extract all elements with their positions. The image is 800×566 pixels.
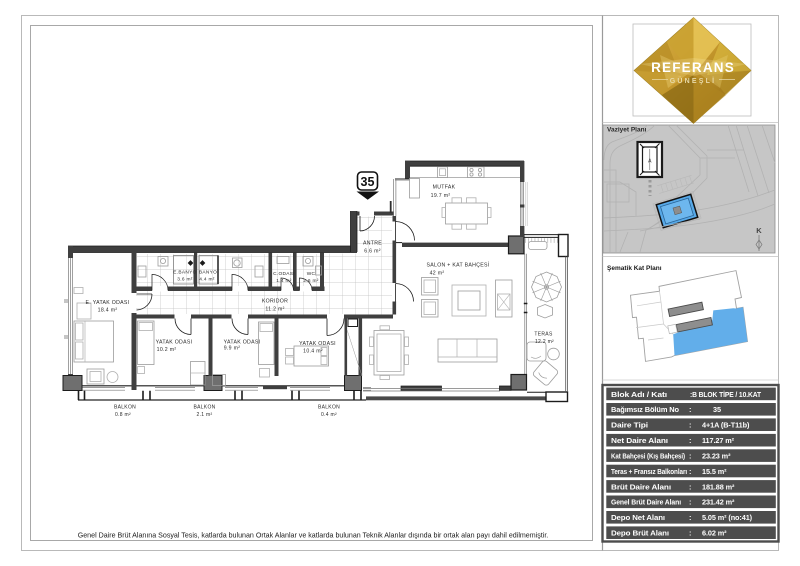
svg-text:0.8 m²: 0.8 m²: [115, 412, 131, 418]
svg-text:181.88 m²: 181.88 m²: [702, 482, 735, 491]
svg-text:2.6 m²: 2.6 m²: [303, 278, 318, 284]
svg-text:GÜNEŞLİ: GÜNEŞLİ: [670, 76, 717, 85]
svg-text:Depo Brüt Alanı: Depo Brüt Alanı: [611, 529, 669, 538]
svg-text:YATAK ODASI: YATAK ODASI: [156, 340, 193, 346]
svg-text:MUTFAK: MUTFAK: [433, 185, 456, 191]
svg-text:1.4 m²: 1.4 m²: [276, 278, 291, 284]
svg-text:ANTRE: ANTRE: [363, 241, 382, 247]
svg-text::: :: [689, 513, 691, 522]
svg-text:Bağımsız Bölüm No: Bağımsız Bölüm No: [611, 405, 680, 414]
svg-text:Genel Brüt Daire Alanı: Genel Brüt Daire Alanı: [611, 498, 681, 507]
svg-text::: :: [689, 452, 691, 461]
svg-text:0.4 m²: 0.4 m²: [321, 412, 337, 418]
svg-text:10.4 m²: 10.4 m²: [303, 349, 323, 355]
svg-text:35: 35: [361, 175, 375, 189]
svg-text:REFERANS: REFERANS: [651, 60, 735, 75]
svg-text:Genel Daire Brüt Alanına Sosya: Genel Daire Brüt Alanına Sosyal Tesis, k…: [78, 532, 549, 540]
svg-text:E.BANYO: E.BANYO: [173, 270, 196, 276]
svg-text:BALKON: BALKON: [193, 405, 215, 411]
svg-text::: :: [689, 498, 691, 507]
svg-text:BANYO: BANYO: [199, 270, 217, 276]
svg-text::: :: [689, 467, 691, 476]
svg-text:231.42 m²: 231.42 m²: [702, 498, 735, 507]
svg-text:10.2 m²: 10.2 m²: [157, 347, 177, 353]
svg-text::: :: [689, 529, 691, 538]
svg-text:9.9 m²: 9.9 m²: [224, 346, 241, 352]
svg-text:4+1A (B-T11b): 4+1A (B-T11b): [702, 421, 750, 430]
svg-text:Kat Bahçesi (Kış Bahçesi): Kat Bahçesi (Kış Bahçesi): [611, 452, 686, 461]
svg-text:WC: WC: [307, 271, 316, 277]
svg-text:Blok Adı / Katı: Blok Adı / Katı: [611, 390, 667, 399]
svg-text:42 m²: 42 m²: [430, 271, 445, 277]
svg-text:BALKON: BALKON: [318, 405, 340, 411]
svg-text:Teras + Fransız Balkonları: Teras + Fransız Balkonları: [611, 467, 687, 476]
svg-text:23.23 m²: 23.23 m²: [702, 452, 731, 461]
svg-text:19.7 m²: 19.7 m²: [431, 193, 451, 199]
svg-text:4.4 m²: 4.4 m²: [199, 277, 214, 283]
svg-text:5.05 m² (no:41): 5.05 m² (no:41): [702, 513, 753, 522]
svg-text:K: K: [756, 226, 762, 235]
svg-text:Brüt Daire Alanı: Brüt Daire Alanı: [611, 482, 671, 491]
svg-text:18.4 m²: 18.4 m²: [98, 308, 118, 314]
svg-text:E. YATAK ODASI: E. YATAK ODASI: [86, 300, 130, 306]
svg-text:3.6 m²: 3.6 m²: [177, 277, 192, 283]
svg-text:SALON + KAT BAHÇESİ: SALON + KAT BAHÇESİ: [426, 262, 489, 269]
svg-text:11.2 m²: 11.2 m²: [265, 307, 284, 313]
svg-text::: :: [689, 405, 691, 414]
svg-text:Vaziyet Planı: Vaziyet Planı: [607, 127, 647, 134]
svg-text::: :: [689, 482, 691, 491]
svg-text::: :: [689, 436, 691, 445]
svg-text:Şematik Kat Planı: Şematik Kat Planı: [607, 265, 662, 272]
svg-text:6.02 m²: 6.02 m²: [702, 529, 727, 538]
svg-text:12.2 m²: 12.2 m²: [535, 339, 554, 345]
svg-text:Net Daire Alanı: Net Daire Alanı: [611, 436, 668, 445]
svg-text:YATAK ODASI: YATAK ODASI: [299, 341, 336, 347]
svg-text:117.27 m²: 117.27 m²: [702, 436, 735, 445]
svg-text:KORIDOR: KORIDOR: [262, 299, 288, 305]
svg-text:Daire Tipi: Daire Tipi: [611, 421, 648, 430]
svg-text:2.1 m²: 2.1 m²: [197, 412, 213, 418]
svg-text:TERAS: TERAS: [534, 332, 553, 338]
svg-text::: :: [689, 421, 691, 430]
svg-text:Depo Net Alanı: Depo Net Alanı: [611, 513, 665, 522]
svg-text:6.6 m²: 6.6 m²: [364, 249, 381, 255]
svg-text:35: 35: [713, 405, 721, 414]
svg-text::B BLOK TİPE / 10.KAT: :B BLOK TİPE / 10.KAT: [690, 390, 762, 399]
svg-text:15.5 m²: 15.5 m²: [702, 467, 727, 476]
svg-text:BALKON: BALKON: [114, 405, 136, 411]
svg-text:C.ODASI: C.ODASI: [273, 271, 295, 277]
